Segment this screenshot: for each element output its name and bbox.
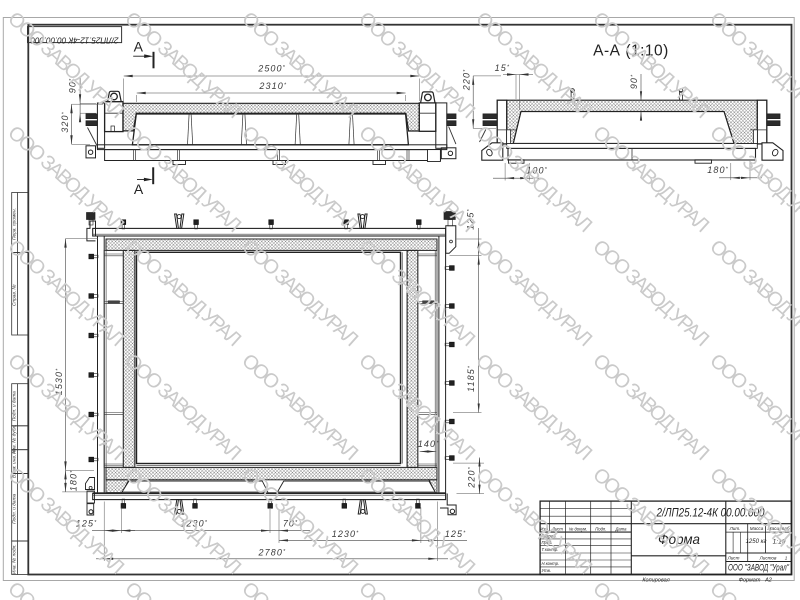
svg-text:Н.контр.: Н.контр. [542,561,560,566]
svg-text:2310*: 2310* [258,81,286,91]
svg-text:2500*: 2500* [257,64,285,74]
svg-text:1: 1 [785,555,788,560]
svg-text:А2: А2 [764,577,772,583]
svg-text:А: А [134,181,144,197]
svg-text:180*: 180* [69,470,79,491]
svg-text:2780*: 2780* [258,547,286,557]
svg-text:Подп. и дата: Подп. и дата [11,391,17,421]
svg-text:Справ. №: Справ. № [11,284,17,306]
svg-text:Формат: Формат [739,577,761,583]
svg-text:Перв. примен.: Перв. примен. [11,208,17,240]
svg-text:№ докум.: № докум. [569,527,587,532]
svg-text:1230*: 1230* [332,529,359,539]
svg-text:ООО "ЗАВОД "Урал": ООО "ЗАВОД "Урал" [728,563,790,573]
svg-text:Листов: Листов [759,555,777,560]
svg-text:1185*: 1185* [466,365,476,392]
svg-text:Инв. № подл.: Инв. № подл. [11,544,17,574]
svg-text:Подп. и дата: Подп. и дата [11,493,17,523]
svg-text:140*: 140* [418,439,439,449]
svg-text:Копировал: Копировал [642,577,669,583]
svg-text:220*: 220* [462,69,472,91]
svg-text:1250 кг: 1250 кг [746,539,767,545]
svg-text:Дата: Дата [614,527,627,532]
svg-text:320*: 320* [60,111,70,132]
svg-text:Лит.: Лит. [729,526,741,531]
svg-text:Утв.: Утв. [542,568,552,573]
svg-text:Подп.: Подп. [595,527,606,532]
svg-text:Лист: Лист [727,555,740,560]
svg-text:180*: 180* [707,165,728,175]
